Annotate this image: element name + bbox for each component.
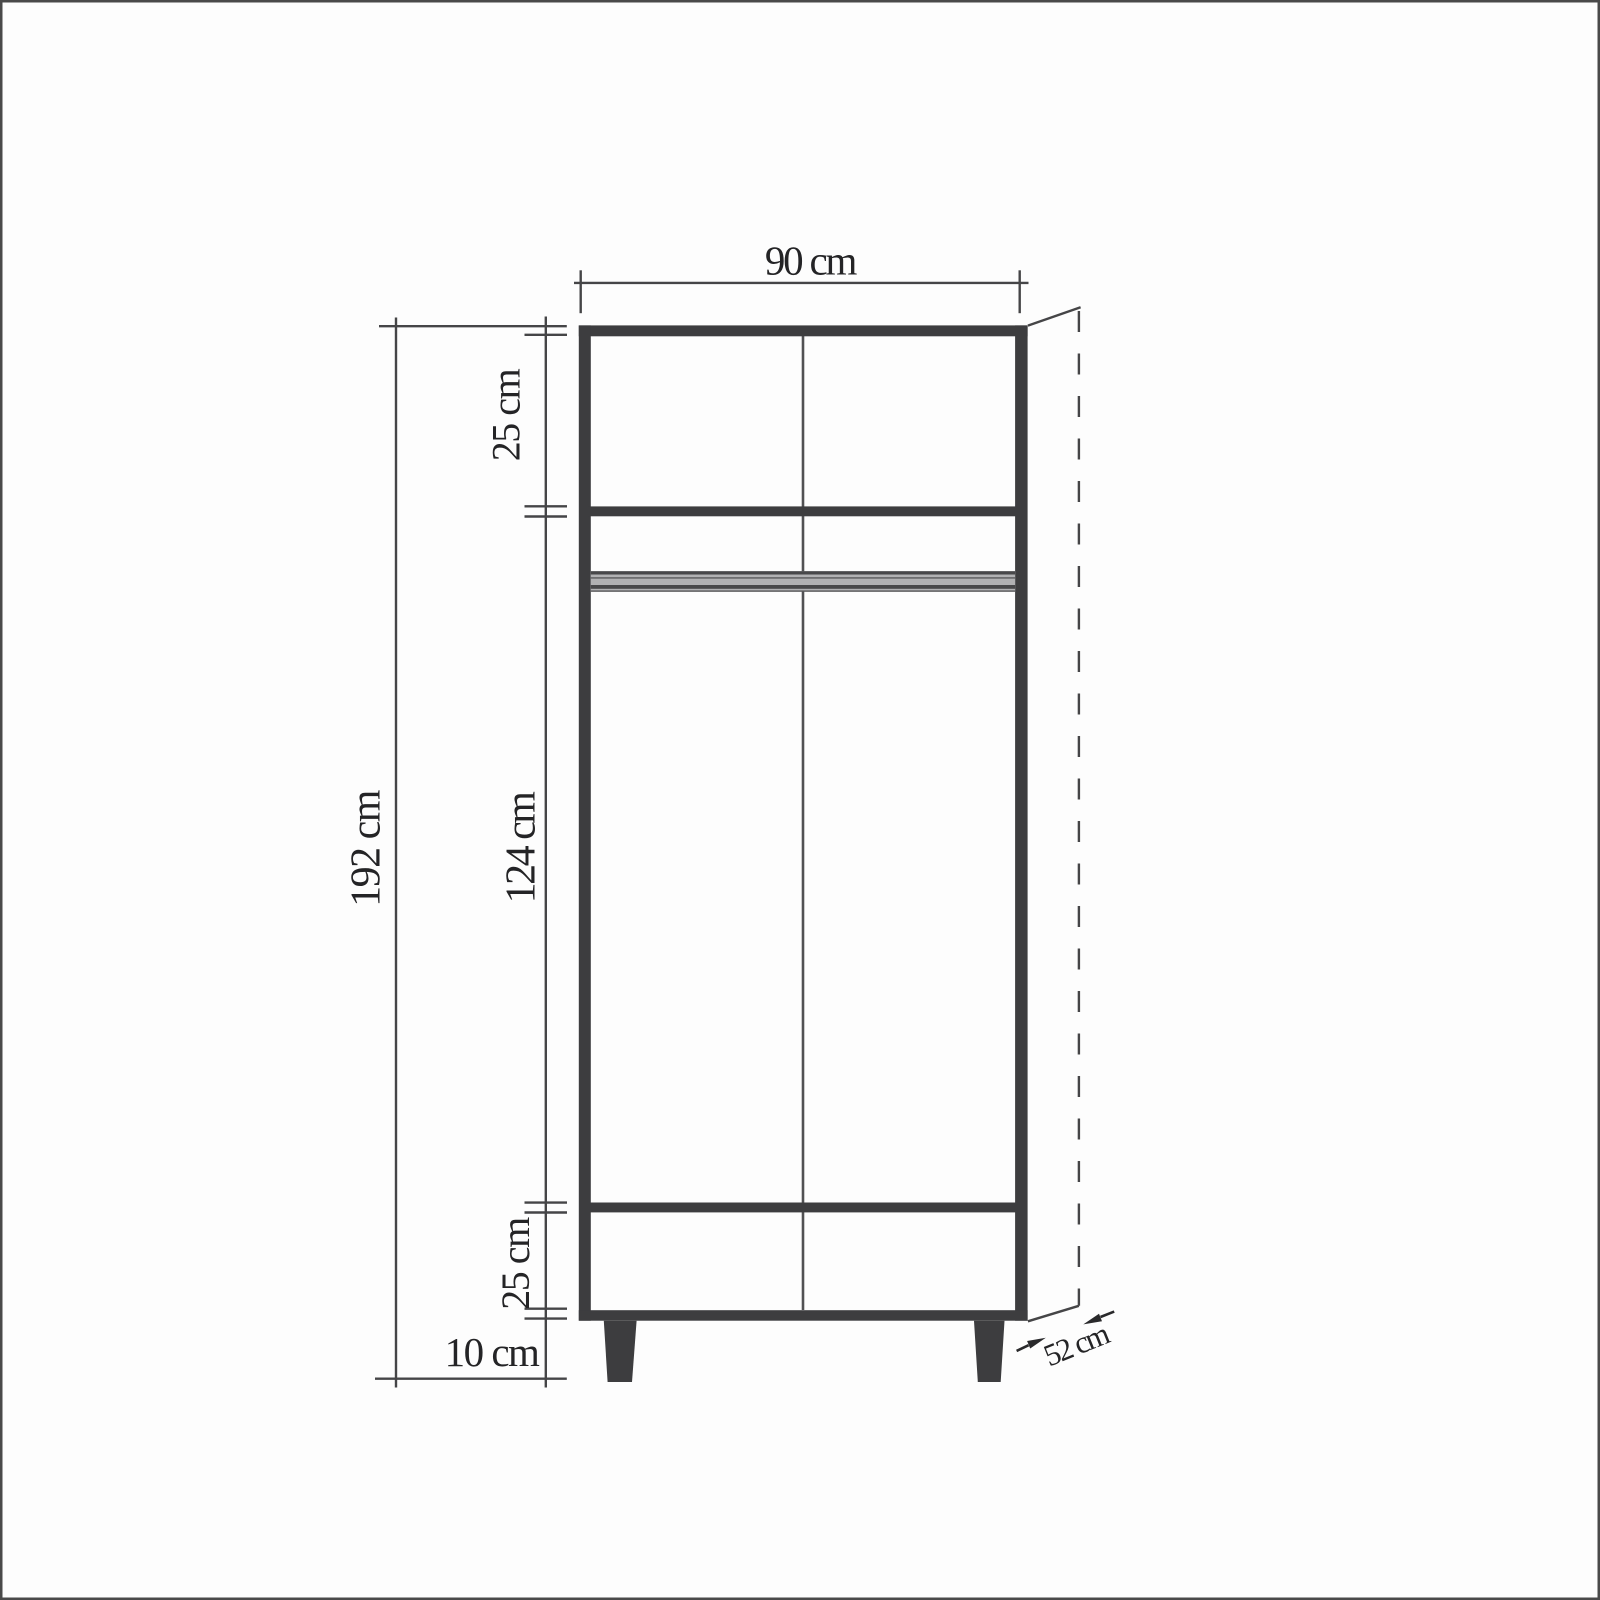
svg-text:25 cm: 25 cm [493,1217,538,1310]
svg-text:192 cm: 192 cm [344,789,390,907]
svg-text:10 cm: 10 cm [445,1329,540,1375]
svg-text:90 cm: 90 cm [765,238,858,284]
svg-text:25 cm: 25 cm [484,368,529,461]
svg-text:124 cm: 124 cm [499,791,545,904]
